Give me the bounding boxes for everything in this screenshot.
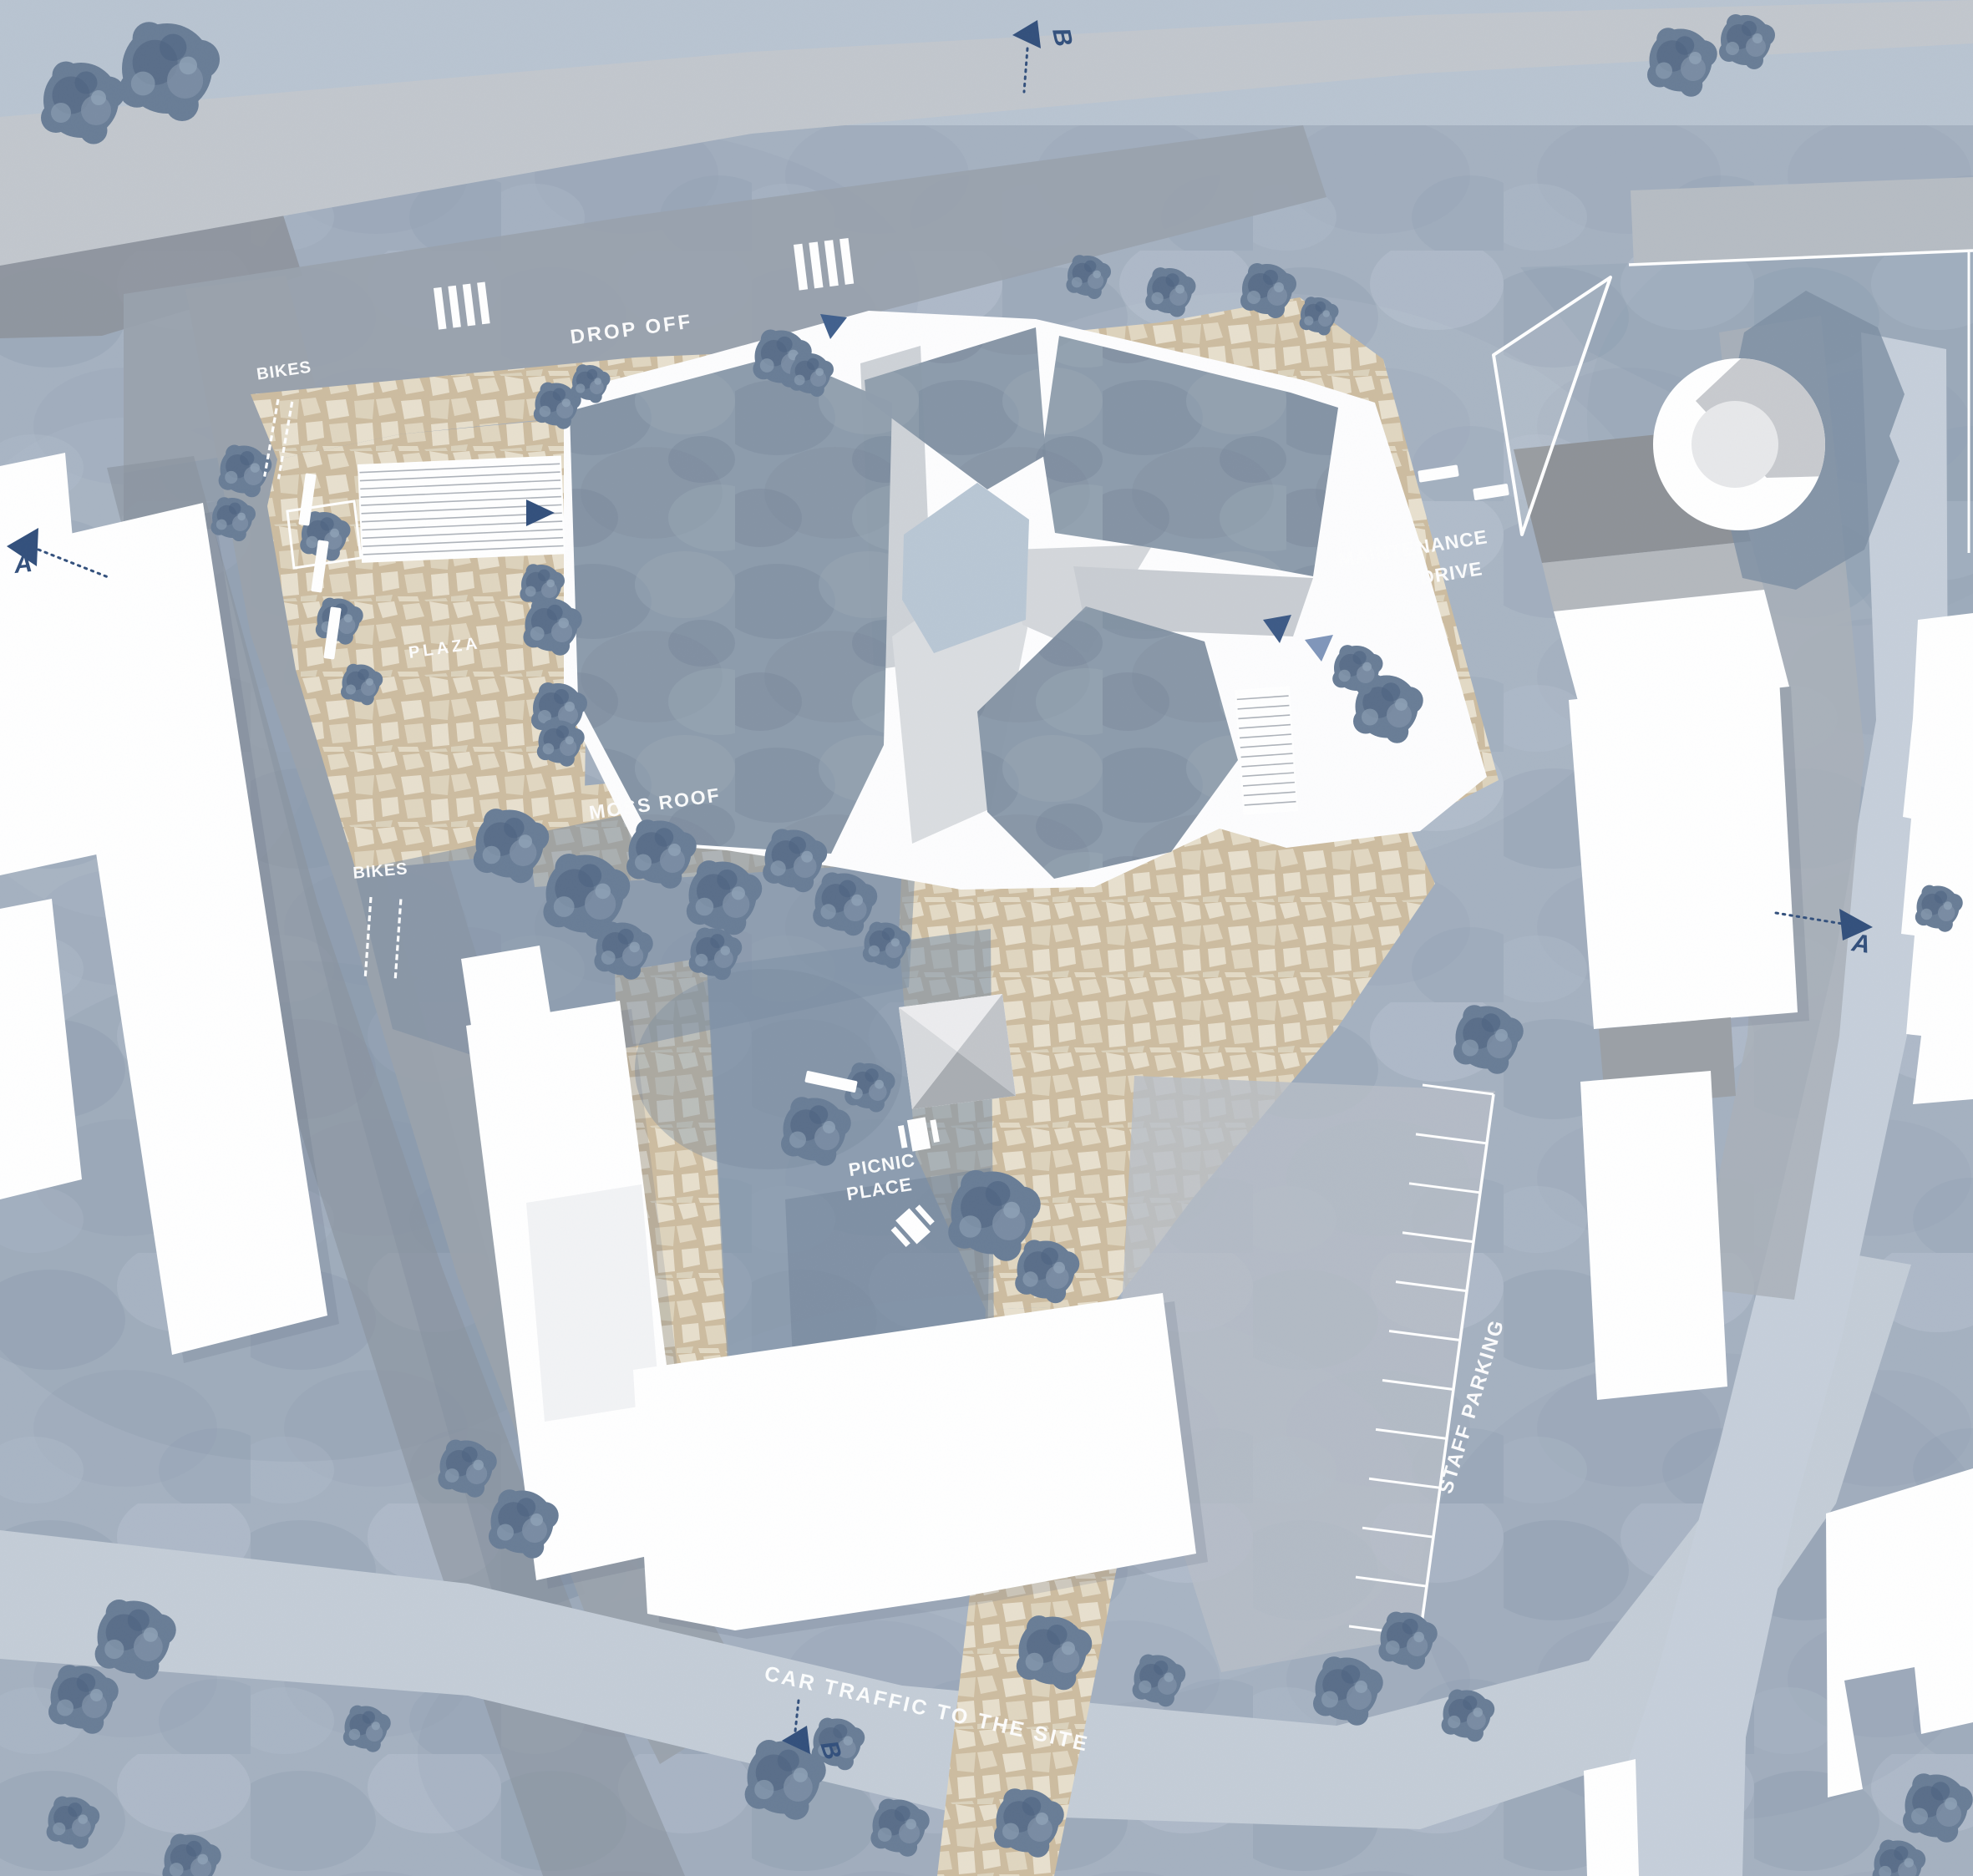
site-plan-page: DROP OFF BIKES PLAZA MOSS ROOF MAINTENAN… (0, 0, 1973, 1876)
site-plan-canvas: DROP OFF BIKES PLAZA MOSS ROOF MAINTENAN… (0, 0, 1973, 1876)
paper-grain (0, 0, 1973, 1876)
